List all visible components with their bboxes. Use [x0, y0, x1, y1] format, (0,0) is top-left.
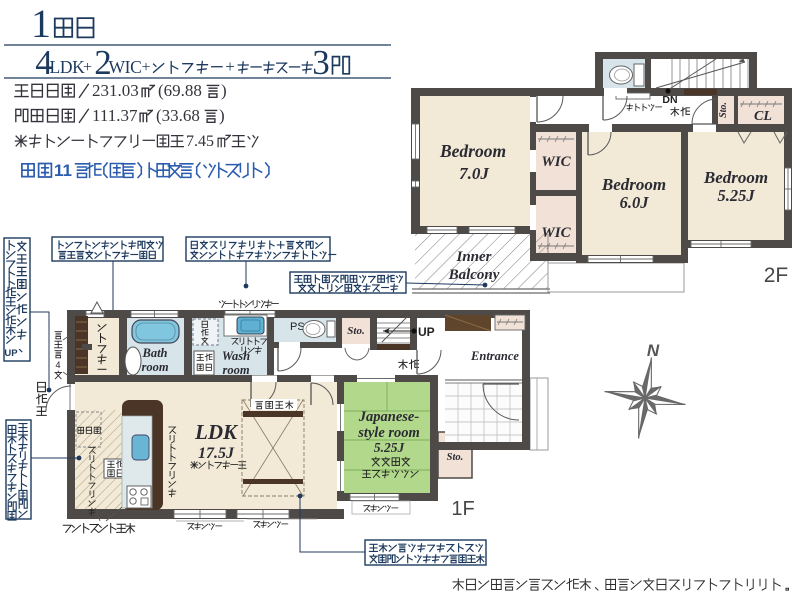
svg-text:11: 11 [54, 161, 72, 180]
svg-text:N: N [647, 341, 660, 360]
svg-text:Wash: Wash [222, 349, 250, 363]
svg-text:(33.68: (33.68 [156, 106, 200, 125]
svg-text:CL: CL [754, 109, 772, 124]
svg-text:111.37: 111.37 [92, 106, 138, 125]
svg-text:Bedroom: Bedroom [439, 141, 506, 161]
svg-text:+: + [225, 57, 235, 76]
svg-text:Sto.: Sto. [718, 102, 729, 118]
svg-text:1F: 1F [451, 498, 474, 520]
svg-text:4: 4 [55, 360, 60, 370]
svg-text:(69.88: (69.88 [158, 81, 202, 100]
svg-text:WIC: WIC [541, 154, 571, 170]
svg-text:Sto.: Sto. [447, 452, 464, 463]
svg-text:PS: PS [290, 321, 305, 333]
svg-text:7.0J: 7.0J [459, 164, 489, 183]
svg-text:Balcony: Balcony [448, 267, 500, 283]
svg-text:room: room [141, 360, 168, 374]
svg-text:+: + [83, 59, 92, 76]
svg-text:Bedroom: Bedroom [703, 168, 768, 187]
svg-text:Japanese-: Japanese- [358, 409, 420, 425]
svg-text:Bedroom: Bedroom [601, 175, 666, 194]
svg-text:5.25J: 5.25J [717, 186, 755, 205]
svg-text:5.25J: 5.25J [374, 440, 406, 455]
svg-text:UP: UP [418, 325, 435, 339]
svg-text:231.03: 231.03 [92, 81, 139, 100]
svg-text:): ) [219, 106, 225, 125]
svg-text:2F: 2F [764, 264, 789, 287]
svg-text:1: 1 [31, 1, 51, 46]
svg-text:WIC: WIC [541, 225, 571, 241]
svg-text:LDK: LDK [194, 420, 239, 444]
svg-text:Inner: Inner [455, 249, 491, 265]
svg-text:DN: DN [662, 94, 677, 106]
svg-text:7.45: 7.45 [186, 133, 214, 150]
svg-text:6.0J: 6.0J [620, 193, 650, 212]
svg-text:UP: UP [4, 348, 18, 359]
svg-text:+: + [141, 59, 150, 76]
svg-text:17.5J: 17.5J [198, 445, 235, 462]
svg-text:Entrance: Entrance [470, 349, 519, 363]
svg-text:3: 3 [312, 43, 330, 82]
svg-text:WIC: WIC [108, 57, 141, 77]
svg-text:room: room [222, 363, 249, 377]
svg-text:Sto.: Sto. [347, 325, 364, 337]
svg-text:style room: style room [357, 425, 420, 441]
svg-text:LDK: LDK [49, 57, 85, 77]
svg-text:Bath: Bath [141, 346, 167, 360]
svg-text:): ) [221, 81, 227, 100]
